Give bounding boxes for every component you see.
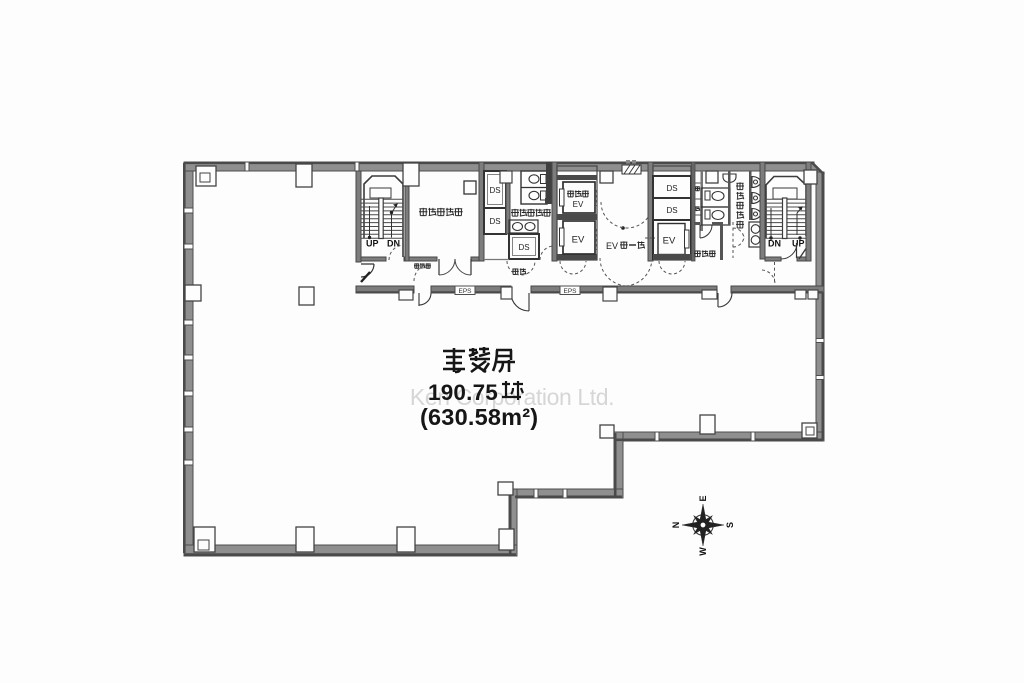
svg-text:EV: EV — [606, 241, 618, 251]
svg-text:EPS: EPS — [458, 288, 472, 295]
svg-text:UP: UP — [366, 239, 379, 249]
svg-text:EV: EV — [663, 236, 676, 247]
svg-text:E: E — [698, 495, 708, 501]
svg-text:190.75: 190.75 — [428, 380, 498, 405]
svg-text:DS: DS — [518, 243, 529, 252]
svg-text:DS: DS — [489, 186, 500, 195]
svg-text:EV: EV — [573, 200, 584, 209]
svg-text:DS: DS — [666, 184, 677, 193]
svg-text:(630.58m²): (630.58m²) — [420, 404, 538, 430]
svg-text:W: W — [698, 547, 708, 556]
svg-text:DN: DN — [387, 239, 400, 249]
svg-text:EPS: EPS — [563, 288, 577, 295]
svg-text:S: S — [725, 522, 735, 528]
svg-text:DS: DS — [489, 217, 500, 226]
svg-text:DN: DN — [768, 239, 781, 249]
svg-text:EV: EV — [572, 235, 585, 246]
svg-text:N: N — [671, 522, 681, 529]
svg-text:UP: UP — [792, 239, 805, 249]
svg-text:DS: DS — [666, 206, 677, 215]
